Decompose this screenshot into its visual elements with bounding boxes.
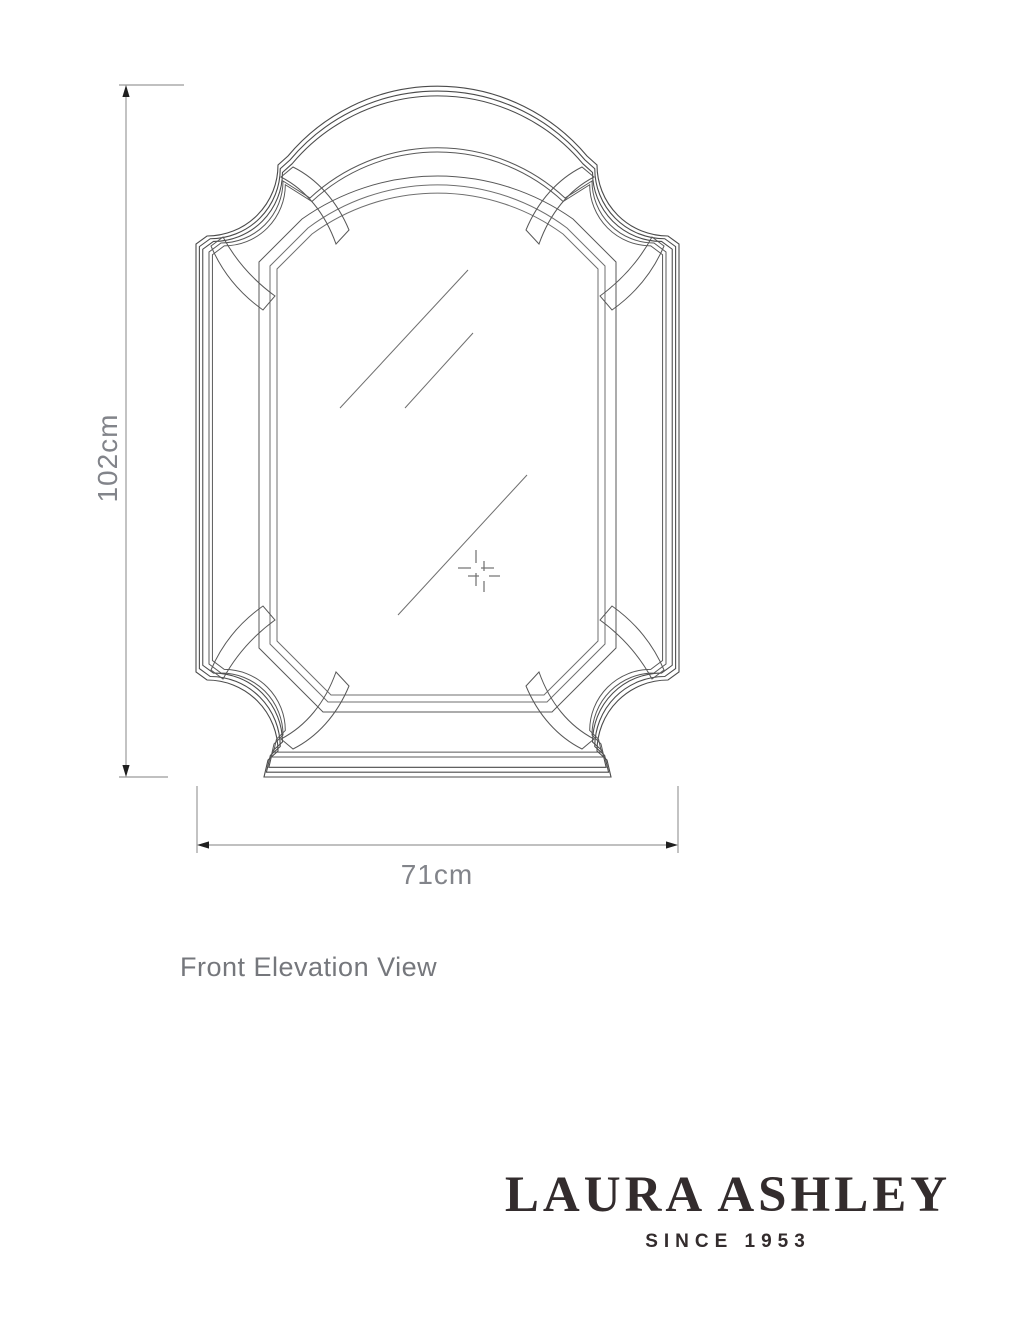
petal-bottom-left-side (211, 606, 275, 679)
arrow-up-icon (122, 85, 129, 97)
frame-bevel-edge (259, 176, 616, 712)
view-caption: Front Elevation View (180, 952, 437, 983)
arrow-down-icon (122, 765, 129, 777)
arrow-right-icon (666, 841, 678, 848)
width-dimension-label: 71cm (375, 861, 499, 889)
arrow-left-icon (197, 841, 209, 848)
page: 102cm 71cm Front Elevation View LAURA AS… (0, 0, 1024, 1331)
brand-name: LAURA ASHLEY (500, 1166, 956, 1224)
petal-bottom-right-base (526, 672, 594, 749)
frame-inner-contour (209, 148, 666, 757)
glass-sparkle-icon (458, 550, 500, 592)
petal-bottom-left-base (281, 672, 349, 749)
brand-tagline: SINCE 1953 (500, 1231, 956, 1253)
petal-bottom-right-side (600, 606, 664, 679)
mirror-elevation-drawing (0, 0, 1024, 1331)
brand-logo: LAURA ASHLEY SINCE 1953 (500, 1166, 956, 1253)
height-dimension (119, 85, 184, 777)
frame-outer-contour (196, 86, 679, 777)
width-dimension (197, 786, 678, 853)
height-dimension-label: 102cm (94, 396, 122, 520)
glass-reflection-lines (340, 270, 527, 615)
glass-edge (270, 185, 605, 702)
corner-petal-ornaments (211, 167, 664, 749)
